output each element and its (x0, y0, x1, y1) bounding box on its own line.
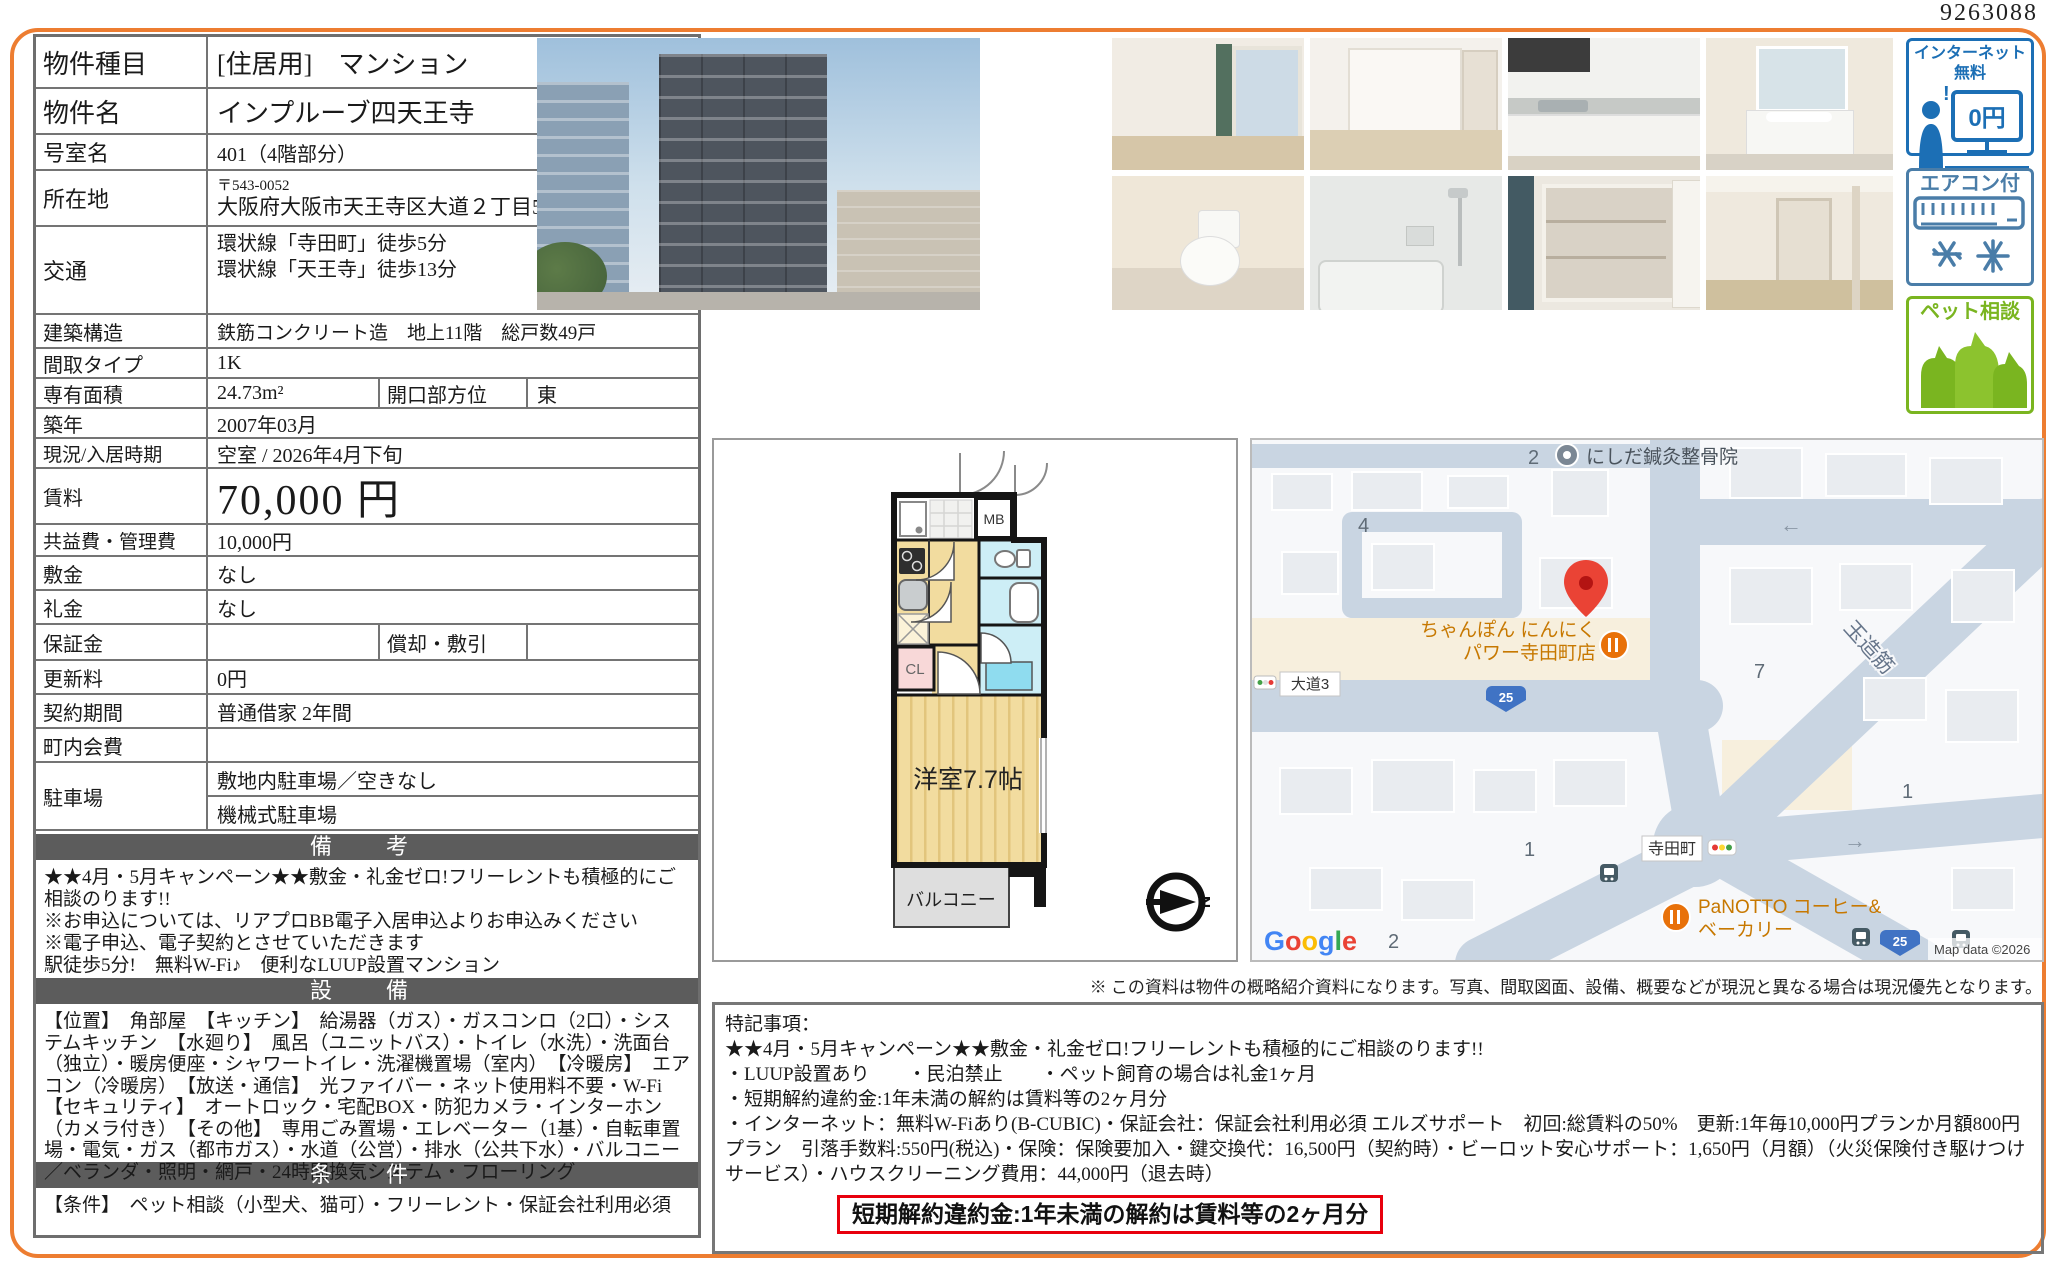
photo-washbasin (1706, 38, 1893, 170)
one-way-arrow-right: → (1844, 828, 1866, 853)
photo-room-interior (1310, 38, 1502, 170)
special-notes-line: ★★4月・5月キャンペーン★★敷金・礼金ゼロ!フリーレントも積極的にご相談のりま… (725, 1037, 2031, 1062)
row-label: 物件種目 (36, 37, 208, 87)
special-notes-title: 特記事項： (725, 1012, 2031, 1037)
area-value: 24.73m² (208, 379, 378, 407)
row-value: 10,000円 (208, 525, 698, 555)
table-row-town-fee: 町内会費 (36, 729, 698, 763)
table-row-status: 現況/入居時期 空室 / 2026年4月下旬 (36, 439, 698, 469)
map-number-1-right: 1 (1902, 781, 1913, 803)
road-label-daido3: 大道3 (1291, 676, 1329, 693)
postal-code: 〒543-0052 (217, 178, 290, 195)
bakery-label-line1: PaNOTTO コーヒー& (1698, 897, 1882, 918)
table-row-renewal: 更新料 0円 (36, 661, 698, 695)
row-label: 更新料 (36, 661, 208, 693)
parking-value-1: 敷地内駐車場／空きなし (208, 763, 698, 797)
address-text: 大阪府大阪市天王寺区大道２丁目5-3 (217, 195, 560, 219)
badge-free-internet: インターネット無料 ! 0円 (1906, 38, 2034, 156)
conditions-box: 【条件】 ペット相談（小型犬、猫可）・フリーレント・保証会社利用必須 (36, 1191, 698, 1235)
row-label: 間取タイプ (36, 349, 208, 377)
row-label: 物件名 (36, 89, 208, 133)
floor-plan: MB CL 洋室7.7帖 バルコニー N (712, 438, 1238, 962)
map-number-4: 4 (1358, 515, 1369, 537)
special-notes-line: ・インターネット：無料W-Fiあり(B-CUBIC)・保証会社：保証会社利用必須… (725, 1112, 2031, 1187)
access-line1: 環状線「寺田町」徒歩5分 (217, 231, 447, 257)
air-conditioner-icon (1909, 194, 2031, 280)
svg-text:25: 25 (1893, 934, 1907, 949)
row-label: 築年 (36, 409, 208, 437)
row-value (208, 729, 698, 761)
row-label: 交通 (36, 227, 208, 313)
balcony-label: バルコニー (906, 890, 996, 910)
row-label: 駐車場 (36, 763, 208, 829)
row-value: 空室 / 2026年4月下旬 (208, 439, 698, 467)
equipment-box: 【位置】 角部屋 【キッチン】 給湯器（ガス）・ガスコンロ（2口）・システムキッ… (36, 1007, 698, 1159)
table-row-built: 築年 2007年03月 (36, 409, 698, 439)
remarks-line: 駅徒歩5分! 無料W-Fi♪ 便利なLUUP設置マンション (44, 955, 690, 977)
penalty-highlight-box: 短期解約違約金:1年未満の解約は賃料等の2ヶ月分 (837, 1195, 1383, 1234)
row-label: 建築構造 (36, 315, 208, 347)
special-notes-line: ・LUUP設置あり ・民泊禁止 ・ペット飼育の場合は礼金1ヶ月 (725, 1062, 2031, 1087)
row-value: 2007年03月 (208, 409, 698, 437)
map-copyright: Map data ©2026 (1934, 942, 2030, 957)
table-row-layout: 間取タイプ 1K (36, 349, 698, 379)
floor-plan-drawing: MB CL 洋室7.7帖 バルコニー N (714, 440, 1236, 960)
row-value: なし (208, 557, 698, 589)
guarantee-value (208, 625, 378, 659)
restaurant-label-line2: パワー寺田町店 (1463, 642, 1596, 664)
row-label: 賃料 (36, 469, 208, 523)
access-line2: 環状線「天王寺」徒歩13分 (217, 257, 457, 283)
table-row-guarantee: 保証金 償却・敷引 (36, 625, 698, 661)
table-row-contract: 契約期間 普通借家 2年間 (36, 695, 698, 729)
amortization-value (528, 625, 698, 659)
special-notes-line: ・短期解約違約金:1年未満の解約は賃料等の2ヶ月分 (725, 1087, 2031, 1112)
row-label: 号室名 (36, 135, 208, 169)
row-label: 保証金 (36, 625, 208, 659)
compass-icon: N (1146, 876, 1214, 928)
section-header-equipment: 設 備 (36, 975, 698, 1007)
special-notes-box: 特記事項： ★★4月・5月キャンペーン★★敷金・礼金ゼロ!フリーレントも積極的に… (712, 1002, 2044, 1254)
photo-toilet (1112, 176, 1304, 310)
rent-value: 70,000 円 (208, 469, 698, 523)
badge-air-conditioner-label: エアコン付 (1909, 174, 2031, 194)
parking-value-2: 機械式駐車場 (208, 797, 698, 829)
table-row-rent: 賃料 70,000 円 (36, 469, 698, 525)
bakery-poi-icon (1662, 903, 1690, 931)
map-drawing: 2 4 7 1 1 2 ← → にしだ鍼灸整骨院 ちゃんぽん にんにく パワー寺… (1252, 440, 2042, 960)
photo-room-window (1112, 38, 1304, 170)
table-row-parking: 駐車場 敷地内駐車場／空きなし 機械式駐車場 (36, 763, 698, 831)
meter-box-label: MB (984, 511, 1005, 527)
clinic-label: にしだ鍼灸整骨院 (1586, 446, 1738, 468)
table-row-structure: 建築構造 鉄筋コンクリート造 地上11階 総戸数49戸 (36, 315, 698, 349)
svg-text:25: 25 (1499, 690, 1513, 705)
disclaimer-note: ※ この資料は物件の概略紹介資料になります。写真、間取図面、設備、概要などが現況… (1090, 973, 2042, 998)
row-label: 敷金 (36, 557, 208, 589)
row-label: 所在地 (36, 171, 208, 225)
map-number-2: 2 (1528, 447, 1539, 469)
bus-stop-icon (1254, 676, 1276, 689)
dogs-icon (1909, 322, 2031, 410)
table-row-deposit: 敷金 なし (36, 557, 698, 591)
map-number-1-left: 1 (1524, 839, 1535, 861)
location-map: 2 4 7 1 1 2 ← → にしだ鍼灸整骨院 ちゃんぽん にんにく パワー寺… (1250, 438, 2044, 962)
row-value: 普通借家 2年間 (208, 695, 698, 727)
restaurant-poi-icon (1600, 631, 1628, 659)
remarks-line: ※電子申込、電子契約とさせていただきます (44, 933, 690, 955)
opening-direction-value: 東 (528, 379, 698, 407)
photo-hallway (1706, 176, 1893, 310)
row-label: 礼金 (36, 591, 208, 623)
google-logo: Google (1264, 926, 1357, 956)
table-row-key-money: 礼金 なし (36, 591, 698, 625)
table-row-area: 専有面積 24.73m² 開口部方位 東 (36, 379, 698, 409)
row-value: 0円 (208, 661, 698, 693)
one-way-arrow-left: ← (1780, 512, 1802, 537)
table-row-fees: 共益費・管理費 10,000円 (36, 525, 698, 557)
badge-free-internet-label: インターネット無料 (1909, 44, 2031, 84)
row-label: 町内会費 (36, 729, 208, 761)
map-number-7: 7 (1754, 661, 1765, 683)
row-label: 契約期間 (36, 695, 208, 727)
row-value: 1K (208, 349, 698, 377)
clinic-pin-icon (1556, 444, 1578, 466)
entrance-door-arcs (960, 451, 1047, 495)
traffic-signal-icon (1708, 840, 1736, 855)
free-internet-icon: ! 0円 (1909, 84, 2031, 174)
remarks-line: ★★4月・5月キャンペーン★★敷金・礼金ゼロ!フリーレントも積極的にご相談のりま… (44, 867, 690, 911)
document-number: 9263088 (1940, 0, 2038, 27)
amortization-label: 償却・敷引 (378, 625, 528, 659)
svg-text:!: ! (1943, 84, 1950, 105)
photo-kitchen (1508, 38, 1700, 170)
main-room-label: 洋室7.7帖 (913, 766, 1023, 794)
section-header-remarks: 備 考 (36, 831, 698, 863)
compass-north-label: N (1195, 896, 1214, 908)
station-label: 寺田町 (1648, 840, 1696, 858)
remarks-line: ※お申込については、リアプロBB電子入居申込よりお申込みください (44, 911, 690, 933)
photo-bathroom (1310, 176, 1502, 310)
row-value: 鉄筋コンクリート造 地上11階 総戸数49戸 (208, 315, 698, 347)
badge-pets-negotiable-label: ペット相談 (1909, 302, 2031, 322)
badge-air-conditioner: エアコン付 (1906, 168, 2034, 286)
row-label: 専有面積 (36, 379, 208, 407)
map-number-2-bottom: 2 (1388, 931, 1399, 953)
restaurant-label-line1: ちゃんぽん にんにく (1420, 619, 1596, 641)
photo-closet (1508, 176, 1700, 310)
row-value: なし (208, 591, 698, 623)
row-label: 共益費・管理費 (36, 525, 208, 555)
opening-direction-label: 開口部方位 (378, 379, 528, 407)
badge-pets-negotiable: ペット相談 (1906, 296, 2034, 414)
badge-monitor-text: 0円 (1968, 105, 2005, 132)
photo-building-exterior (537, 38, 980, 310)
closet-label: CL (905, 661, 924, 678)
bakery-label-line2: ベーカリー (1698, 920, 1793, 941)
row-label: 現況/入居時期 (36, 439, 208, 467)
remarks-box: ★★4月・5月キャンペーン★★敷金・礼金ゼロ!フリーレントも積極的にご相談のりま… (36, 863, 698, 975)
